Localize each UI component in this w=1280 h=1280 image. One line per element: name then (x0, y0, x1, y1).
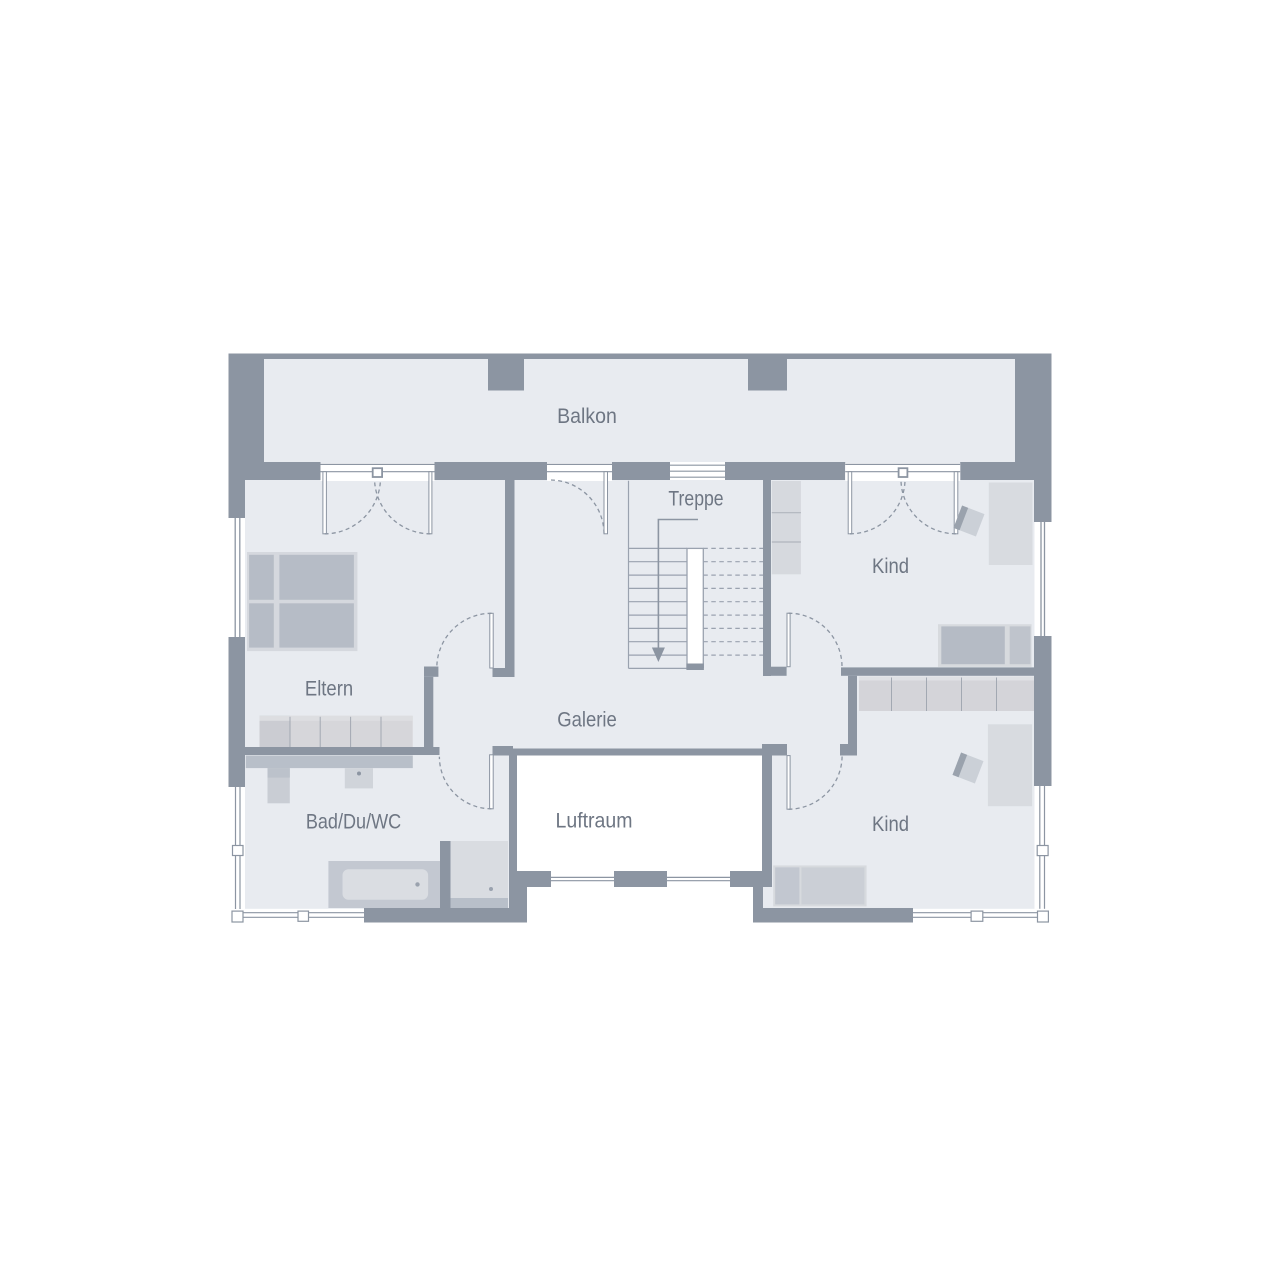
svg-text:Bad/Du/WC: Bad/Du/WC (306, 810, 401, 834)
svg-text:Luftraum: Luftraum (555, 810, 632, 833)
svg-text:Balkon: Balkon (557, 405, 617, 428)
svg-text:Kind: Kind (872, 813, 909, 836)
svg-text:Eltern: Eltern (305, 677, 353, 700)
svg-text:Treppe: Treppe (668, 487, 723, 511)
svg-text:Galerie: Galerie (557, 708, 617, 731)
svg-text:Kind: Kind (872, 555, 909, 578)
